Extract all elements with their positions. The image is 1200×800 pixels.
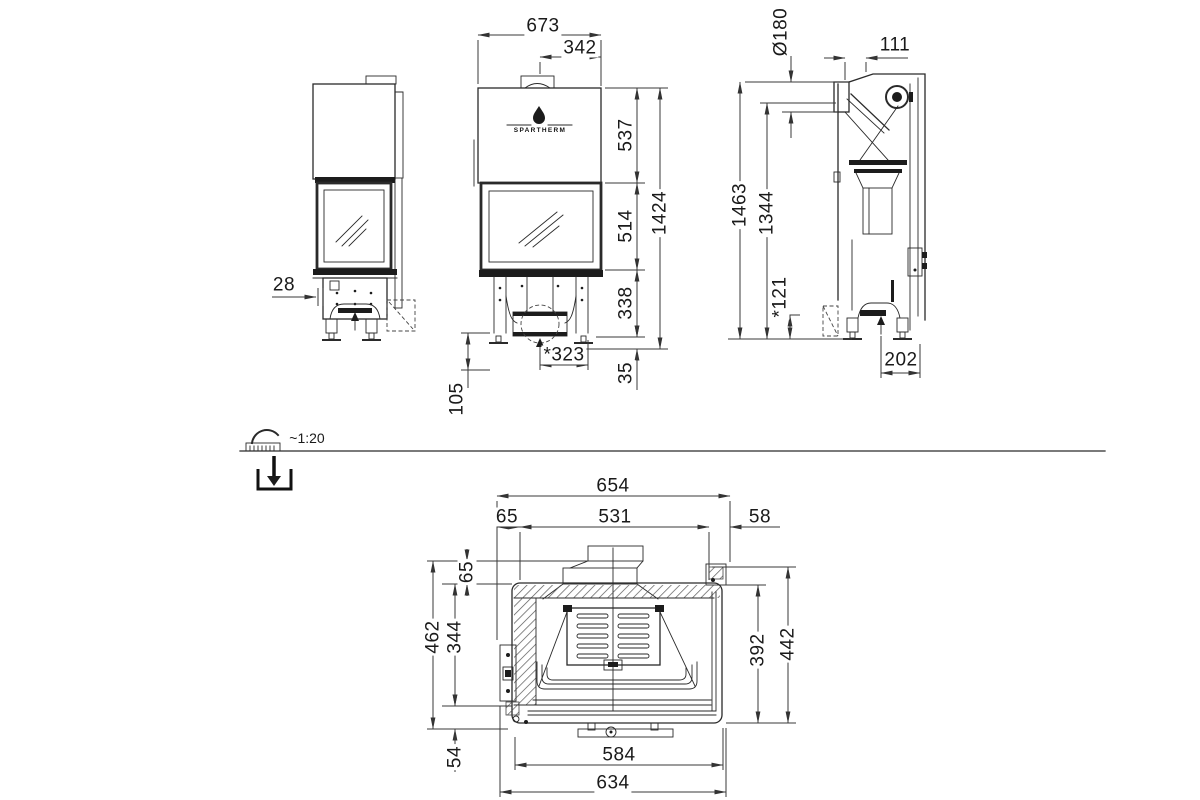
dim-left-front-recess: 28 <box>271 276 297 295</box>
dim-right-base-detail: *121 <box>771 274 790 319</box>
dim-plan-glass-depth: 392 <box>749 631 768 668</box>
dim-right-foot-spacing: 202 <box>882 351 919 370</box>
technical-drawing-page: SPARTHERM 673 342 537 514 338 35 1424 *3… <box>0 0 1200 800</box>
dim-front-glass-height: 514 <box>617 207 636 244</box>
dim-plan-right-depth: 442 <box>779 625 798 662</box>
flame-icon <box>533 106 545 124</box>
dim-front-flue-offset: 342 <box>561 39 598 58</box>
plan-view-drawing <box>500 546 726 737</box>
left-side-view-drawing <box>272 76 415 340</box>
spartherm-logo: SPARTHERM <box>514 128 566 135</box>
dim-right-body-height: 1344 <box>758 189 777 237</box>
dim-plan-door-width: 584 <box>600 746 637 765</box>
dim-plan-glass-width: 531 <box>596 508 633 527</box>
dim-front-base-height: 338 <box>617 284 636 321</box>
section-symbol <box>258 456 291 489</box>
dim-front-total-height: 1424 <box>651 189 670 237</box>
dim-plan-front-depth: 54 <box>446 744 465 770</box>
dim-front-feet-height: 35 <box>617 360 636 386</box>
front-view-drawing <box>474 76 603 354</box>
right-side-view-drawing <box>823 74 927 339</box>
scale-indicator <box>240 430 1105 451</box>
scale-label: ~1:20 <box>287 431 326 445</box>
dim-plan-right-offset: 58 <box>747 508 773 527</box>
dim-plan-left-offset: 65 <box>494 508 520 527</box>
dim-plan-inner-depth: 344 <box>446 618 465 655</box>
dim-front-ground-clearance: 105 <box>448 380 467 417</box>
dim-plan-collar-depth: 65 <box>458 559 477 585</box>
dim-right-flue-diameter: Ø180 <box>772 6 791 58</box>
dim-right-total-height: 1463 <box>731 181 750 229</box>
dim-right-flue-front-offset: 111 <box>878 36 912 55</box>
dim-plan-outer-depth: 462 <box>424 618 443 655</box>
dim-plan-front-width: 634 <box>594 774 631 793</box>
dim-front-hood-height: 537 <box>617 116 636 153</box>
dim-plan-outer-width: 654 <box>594 477 631 496</box>
dim-front-air-inlet-offset: *323 <box>541 346 586 365</box>
technical-drawing-canvas <box>0 0 1200 800</box>
dim-front-width: 673 <box>524 17 561 36</box>
protractor-icon <box>252 430 278 443</box>
